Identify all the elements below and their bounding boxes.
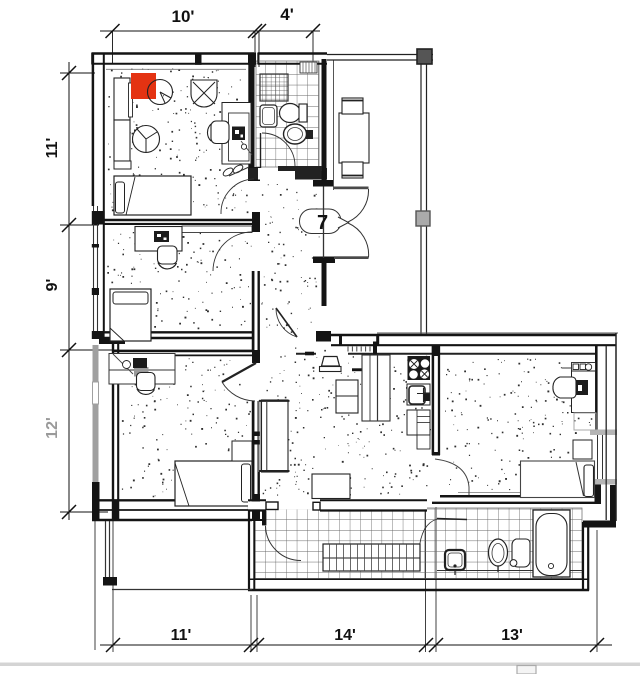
- svg-text:14': 14': [334, 627, 356, 644]
- svg-text:9': 9': [44, 279, 61, 292]
- svg-text:4': 4': [280, 5, 294, 24]
- svg-text:11': 11': [44, 138, 61, 159]
- svg-text:11': 11': [171, 627, 192, 644]
- svg-text:12': 12': [44, 417, 61, 439]
- svg-text:10': 10': [172, 7, 195, 26]
- svg-text:7: 7: [317, 212, 328, 234]
- svg-text:13': 13': [501, 627, 523, 644]
